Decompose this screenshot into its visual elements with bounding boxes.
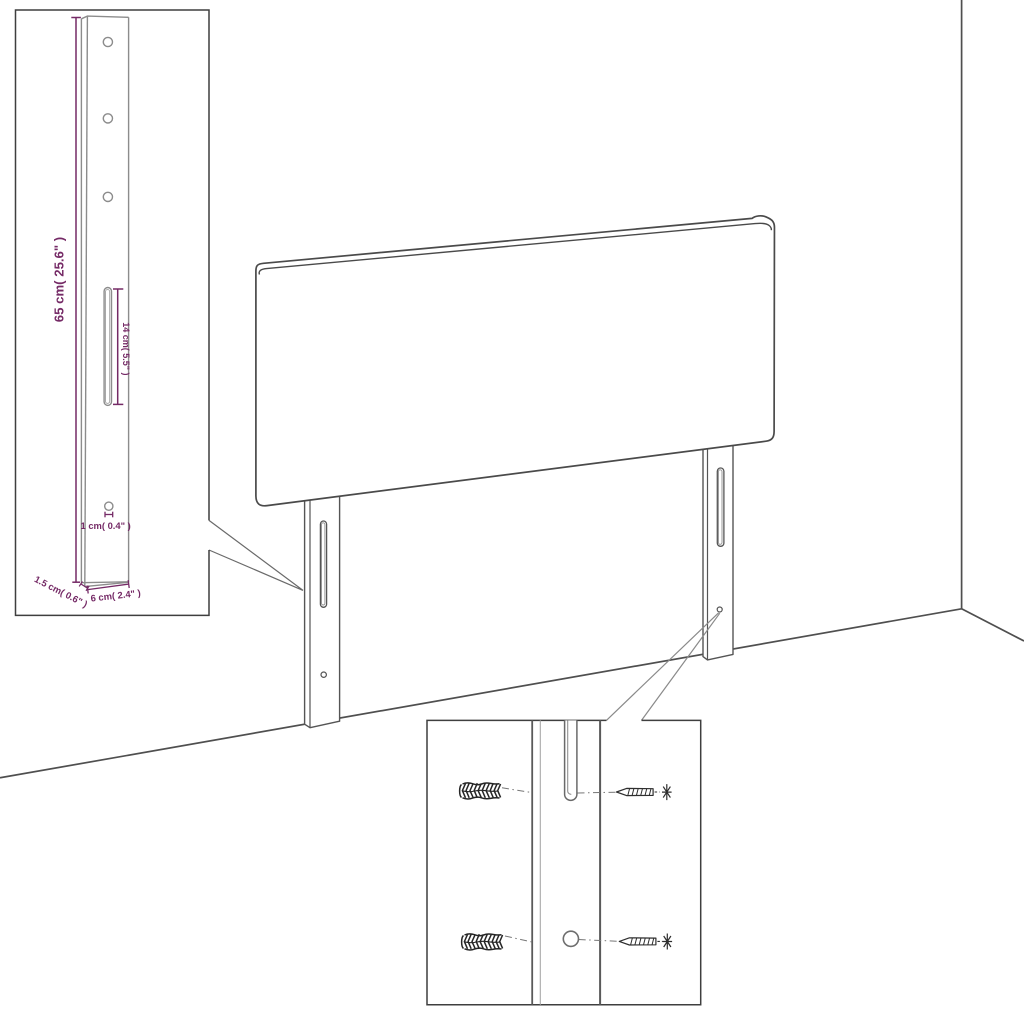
svg-text:6 cm( 2.4" ): 6 cm( 2.4" ): [90, 587, 141, 604]
svg-text:65 cm( 25.6" ): 65 cm( 25.6" ): [52, 237, 67, 322]
svg-text:1 cm( 0.4" ): 1 cm( 0.4" ): [81, 520, 131, 531]
svg-text:14 cm( 5.5" ): 14 cm( 5.5" ): [121, 322, 131, 375]
